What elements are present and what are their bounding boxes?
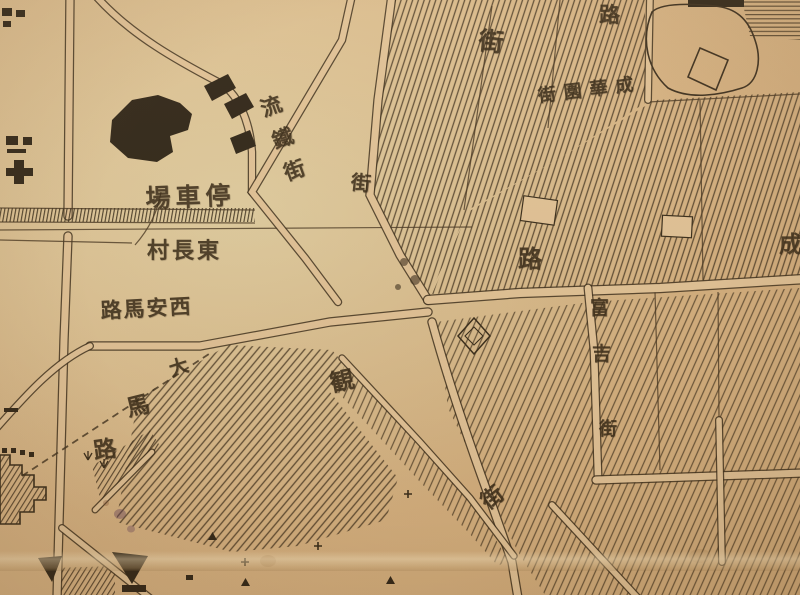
corner-mark [16,10,25,17]
triangle-mark [386,576,395,584]
label-street-char-top: 街 [477,28,505,57]
edge-building [6,136,18,145]
label-right-street-char2: 吉 [592,345,611,365]
bottom-mark [122,585,146,592]
block-northeast-corner [742,0,800,40]
map-canvas: 場車停 村長東 路馬安西 大 馬 路 流鐵街 街 街 路 街園華成 路 富 吉 … [0,0,800,595]
corner-mark [3,21,11,27]
label-cheng-char-edge: 成 [779,233,800,257]
pond-outline [646,4,758,95]
edge-building [23,137,32,145]
triangle-mark [241,578,250,586]
open-building-outline [661,215,692,238]
block-bottom-triangle [55,566,115,595]
tilted-square-outline [688,48,728,90]
label-xian-road: 路馬安西 [100,295,193,322]
label-street-char-mid: 街 [350,172,372,195]
small-building [224,93,254,119]
label-village: 村長東 [147,240,222,263]
large-building [110,95,192,162]
open-building-outline [520,196,557,225]
label-station: 場車停 [145,183,236,212]
corner-mark [2,8,12,16]
label-road-char-topright: 路 [599,4,620,26]
label-grand-road-char3: 路 [92,437,118,464]
edge-building [7,149,26,153]
label-right-street-char3: 街 [599,421,617,440]
label-road-char-center: 路 [518,247,542,272]
label-guan-char: 観 [328,367,357,397]
cross-building [6,160,33,184]
city-wall-bastion [0,408,46,524]
label-right-street-char1: 富 [590,299,609,319]
bottom-mark [186,575,193,580]
